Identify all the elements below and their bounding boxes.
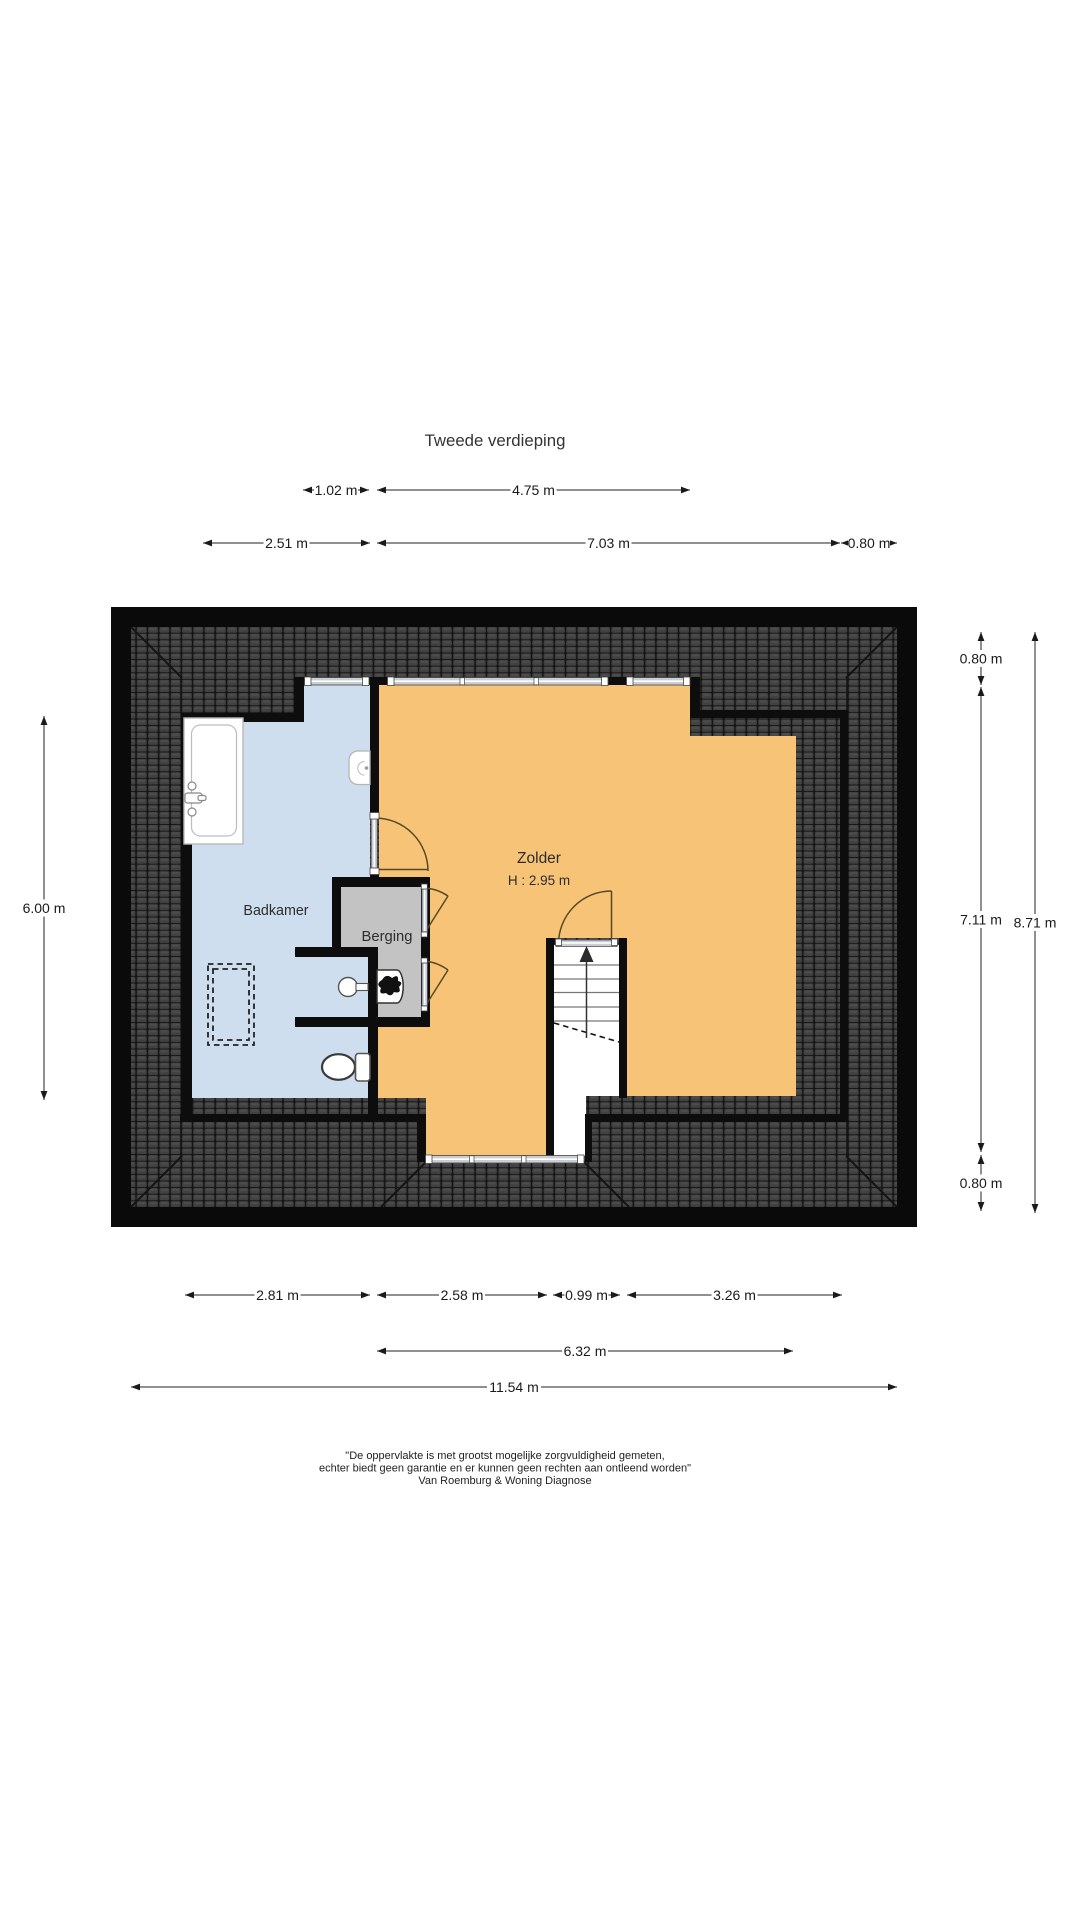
svg-text:"De oppervlakte is met grootst: "De oppervlakte is met grootst mogelijke…	[345, 1450, 664, 1462]
svg-text:6.32 m: 6.32 m	[564, 1343, 607, 1359]
svg-text:2.58 m: 2.58 m	[441, 1287, 484, 1303]
svg-text:Badkamer: Badkamer	[243, 903, 308, 919]
svg-text:7.03 m: 7.03 m	[587, 535, 630, 551]
svg-text:1.02 m: 1.02 m	[315, 482, 358, 498]
svg-text:2.81 m: 2.81 m	[256, 1287, 299, 1303]
svg-text:Berging: Berging	[361, 929, 412, 945]
svg-text:echter biedt geen garantie en: echter biedt geen garantie en er kunnen …	[319, 1463, 691, 1475]
svg-text:0.99 m: 0.99 m	[565, 1287, 608, 1303]
svg-text:7.11 m: 7.11 m	[960, 912, 1002, 928]
svg-text:4.75 m: 4.75 m	[512, 482, 555, 498]
svg-text:Van Roemburg & Woning Diagnose: Van Roemburg & Woning Diagnose	[418, 1475, 591, 1487]
svg-text:3.26 m: 3.26 m	[713, 1287, 756, 1303]
svg-text:6.00 m: 6.00 m	[23, 900, 66, 916]
svg-text:Zolder: Zolder	[517, 850, 561, 867]
svg-text:0.80 m: 0.80 m	[960, 1175, 1003, 1191]
svg-text:2.51 m: 2.51 m	[265, 535, 308, 551]
svg-text:0.80 m: 0.80 m	[960, 651, 1003, 667]
svg-text:Tweede verdieping: Tweede verdieping	[425, 431, 566, 450]
svg-text:8.71 m: 8.71 m	[1014, 915, 1057, 931]
svg-text:H : 2.95 m: H : 2.95 m	[508, 873, 570, 888]
svg-text:0.80 m: 0.80 m	[848, 535, 891, 551]
svg-text:11.54 m: 11.54 m	[489, 1379, 539, 1395]
